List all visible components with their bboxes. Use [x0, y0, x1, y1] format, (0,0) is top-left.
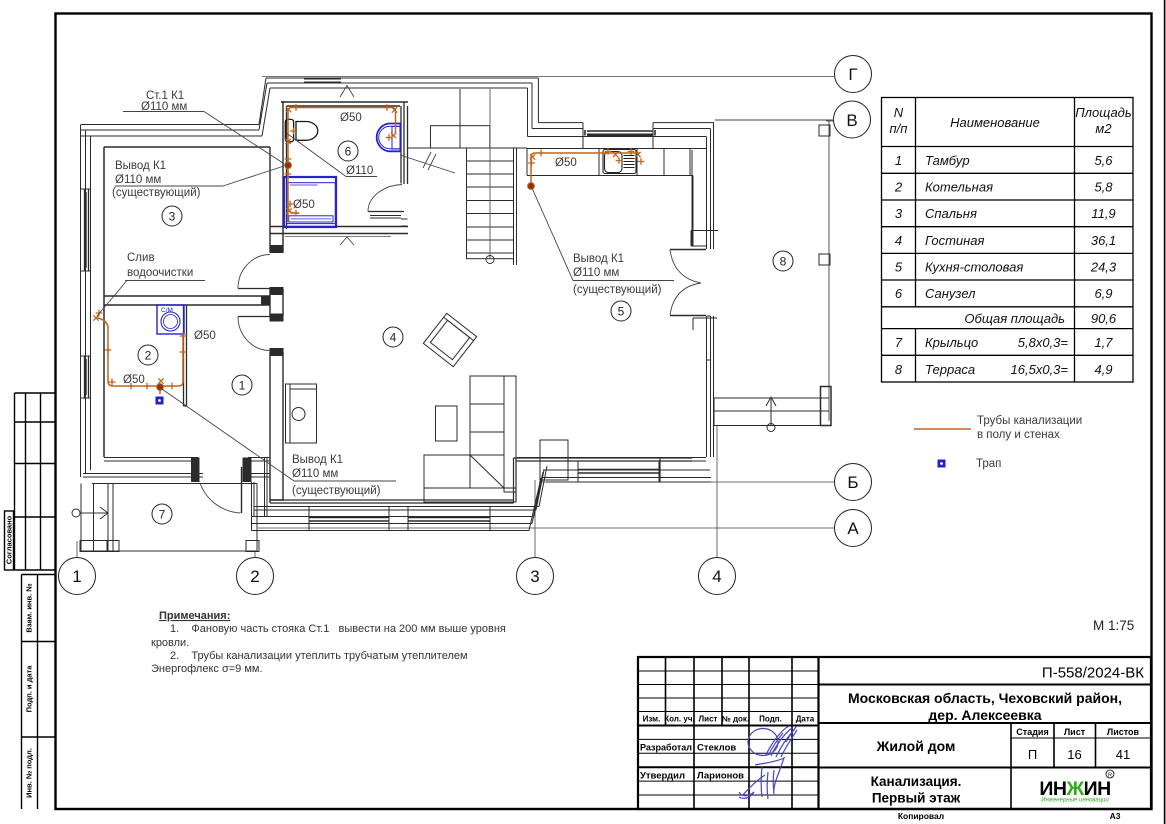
svg-text:16: 16	[1067, 747, 1081, 762]
svg-text:Дата: Дата	[796, 715, 815, 724]
svg-text:5,8: 5,8	[1094, 180, 1113, 195]
svg-text:Гостиная: Гостиная	[925, 233, 985, 248]
svg-text:Взам. инв. №: Взам. инв. №	[25, 583, 34, 632]
svg-text:Площадь: Площадь	[1075, 105, 1132, 120]
svg-text:в полу и стенах: в полу и стенах	[977, 429, 1060, 441]
svg-text:В: В	[846, 111, 857, 130]
svg-text:2: 2	[145, 349, 152, 363]
svg-text:Ø50: Ø50	[555, 157, 577, 169]
svg-text:8: 8	[780, 255, 787, 269]
svg-text:2. Трубы канализации утепли: 2. Трубы канализации утеплить трубчатым …	[170, 650, 468, 662]
svg-text:4: 4	[712, 567, 721, 586]
svg-text:Ø110 мм: Ø110 мм	[573, 267, 619, 279]
svg-text:м2: м2	[1095, 121, 1112, 136]
svg-text:Ø110 мм: Ø110 мм	[141, 101, 187, 113]
svg-text:4: 4	[895, 233, 902, 248]
svg-text:3: 3	[169, 210, 176, 224]
svg-text:№ док.: № док.	[722, 715, 749, 724]
svg-text:П-558/2024-ВК: П-558/2024-ВК	[1042, 665, 1144, 682]
svg-text:8: 8	[895, 362, 903, 377]
svg-text:6,9: 6,9	[1094, 286, 1112, 301]
svg-text:Ларионов: Ларионов	[697, 771, 744, 782]
svg-text:кровли.: кровли.	[151, 637, 189, 649]
svg-text:Примечания:: Примечания:	[159, 610, 230, 622]
svg-text:3: 3	[895, 206, 903, 221]
svg-text:(существующий): (существующий)	[292, 485, 381, 497]
svg-text:Котельная: Котельная	[925, 180, 993, 195]
svg-text:2: 2	[250, 567, 259, 586]
svg-text:Лист: Лист	[699, 715, 718, 724]
svg-text:Ø50: Ø50	[194, 330, 216, 342]
svg-text:Ø50: Ø50	[340, 112, 362, 124]
svg-text:Энергофлекс σ=9 мм.: Энергофлекс σ=9 мм.	[151, 663, 263, 675]
svg-text:А3: А3	[1110, 811, 1121, 821]
svg-text:П: П	[1028, 747, 1037, 762]
svg-text:Терраса: Терраса	[925, 362, 975, 377]
svg-text:11,9: 11,9	[1091, 206, 1115, 221]
svg-text:4,9: 4,9	[1094, 362, 1112, 377]
svg-text:Спальня: Спальня	[925, 206, 977, 221]
svg-text:Б: Б	[847, 473, 858, 492]
svg-text:М 1:75: М 1:75	[1093, 618, 1134, 633]
svg-text:Первый этаж: Первый этаж	[872, 791, 961, 806]
svg-text:5,6: 5,6	[1094, 153, 1113, 168]
svg-text:Вывод К1: Вывод К1	[292, 454, 343, 466]
svg-text:Ø110 мм: Ø110 мм	[292, 468, 338, 480]
svg-text:2: 2	[894, 180, 903, 195]
svg-text:Общая площадь: Общая площадь	[964, 311, 1065, 326]
svg-text:5,8х0,3=: 5,8х0,3=	[1018, 335, 1069, 350]
svg-text:Наименование: Наименование	[950, 115, 1040, 130]
svg-text:4: 4	[390, 331, 397, 345]
svg-text:Утвердил: Утвердил	[640, 771, 685, 782]
svg-text:Изм.: Изм.	[643, 715, 661, 724]
svg-text:41: 41	[1116, 747, 1130, 762]
svg-text:Кухня-столовая: Кухня-столовая	[925, 260, 1023, 275]
svg-text:5: 5	[895, 260, 903, 275]
svg-text:Слив: Слив	[127, 252, 155, 264]
svg-text:36,1: 36,1	[1091, 233, 1116, 248]
svg-text:Кол. уч.: Кол. уч.	[664, 715, 694, 724]
svg-text:24,3: 24,3	[1090, 260, 1117, 275]
svg-text:6: 6	[895, 286, 903, 301]
svg-text:Инженерные инновации: Инженерные инновации	[1041, 798, 1109, 804]
svg-text:водоочистки: водоочистки	[127, 267, 193, 279]
svg-text:Стеклов: Стеклов	[697, 743, 736, 754]
svg-text:Инв. № подл.: Инв. № подл.	[25, 748, 34, 798]
svg-text:Ø110: Ø110	[346, 165, 373, 177]
svg-text:Канализация.: Канализация.	[871, 774, 962, 789]
svg-text:1: 1	[895, 153, 902, 168]
svg-text:Крыльцо: Крыльцо	[925, 335, 978, 350]
svg-text:6: 6	[345, 145, 352, 159]
svg-text:Стадия: Стадия	[1016, 727, 1048, 737]
svg-text:N: N	[894, 105, 904, 120]
svg-text:(существующий): (существующий)	[112, 187, 201, 199]
svg-text:R: R	[1108, 773, 1112, 779]
svg-text:7: 7	[159, 508, 166, 522]
svg-text:5: 5	[618, 305, 625, 319]
svg-text:1: 1	[239, 379, 246, 393]
svg-text:Тамбур: Тамбур	[925, 153, 970, 168]
svg-text:1. Фановую часть стояка Ст.: 1. Фановую часть стояка Ст.1 вывести на …	[170, 623, 506, 635]
svg-text:Разработал: Разработал	[640, 743, 692, 754]
svg-text:Согласовано: Согласовано	[5, 515, 14, 564]
svg-text:Подп. и дата: Подп. и дата	[25, 665, 34, 713]
svg-text:90,6: 90,6	[1091, 311, 1117, 326]
svg-text:Санузел: Санузел	[925, 286, 976, 301]
svg-text:Листов: Листов	[1107, 727, 1140, 737]
svg-text:Г: Г	[848, 65, 857, 84]
svg-text:п/п: п/п	[890, 121, 908, 136]
svg-text:1,7: 1,7	[1094, 335, 1113, 350]
svg-text:Московская область, Чеховский: Московская область, Чеховский район,	[848, 690, 1122, 706]
svg-text:Трап: Трап	[976, 458, 1001, 470]
svg-text:Копировал: Копировал	[898, 811, 944, 821]
svg-text:Вывод К1: Вывод К1	[573, 253, 624, 265]
svg-text:Ø110 мм: Ø110 мм	[115, 174, 161, 186]
svg-text:1: 1	[72, 567, 81, 586]
svg-text:Вывод К1: Вывод К1	[115, 160, 166, 172]
svg-text:Жилой дом: Жилой дом	[876, 738, 956, 754]
svg-text:16,5х0,3=: 16,5х0,3=	[1011, 362, 1069, 377]
svg-text:С/М: С/М	[161, 307, 173, 314]
svg-text:Трубы канализации: Трубы канализации	[977, 415, 1082, 427]
svg-text:Подп.: Подп.	[759, 715, 782, 724]
svg-text:дер. Алексеевка: дер. Алексеевка	[928, 707, 1041, 723]
svg-text:А: А	[847, 519, 859, 538]
svg-text:Ø50: Ø50	[293, 199, 315, 211]
svg-text:Лист: Лист	[1064, 727, 1086, 737]
svg-text:Ø50: Ø50	[123, 374, 145, 386]
svg-text:(существующий): (существующий)	[573, 284, 662, 296]
svg-text:7: 7	[895, 335, 903, 350]
svg-text:3: 3	[530, 567, 539, 586]
